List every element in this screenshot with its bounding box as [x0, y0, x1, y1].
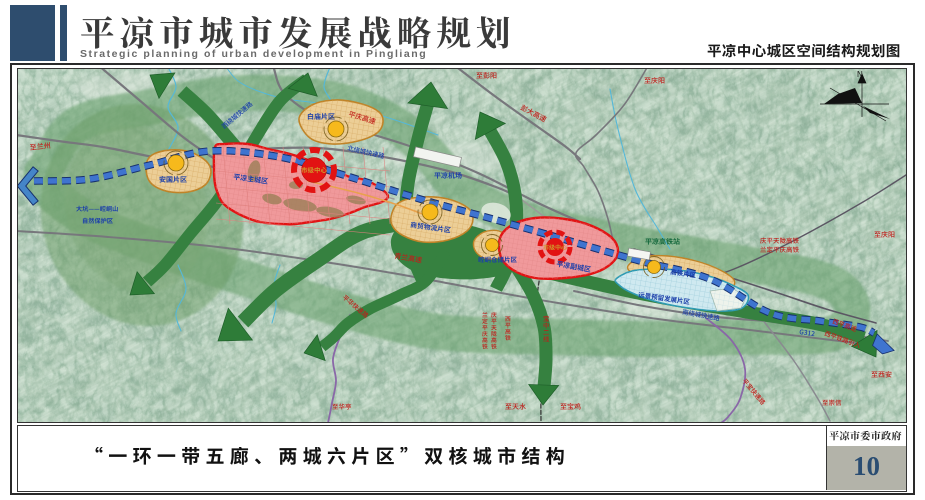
svg-text:N: N: [857, 70, 863, 79]
